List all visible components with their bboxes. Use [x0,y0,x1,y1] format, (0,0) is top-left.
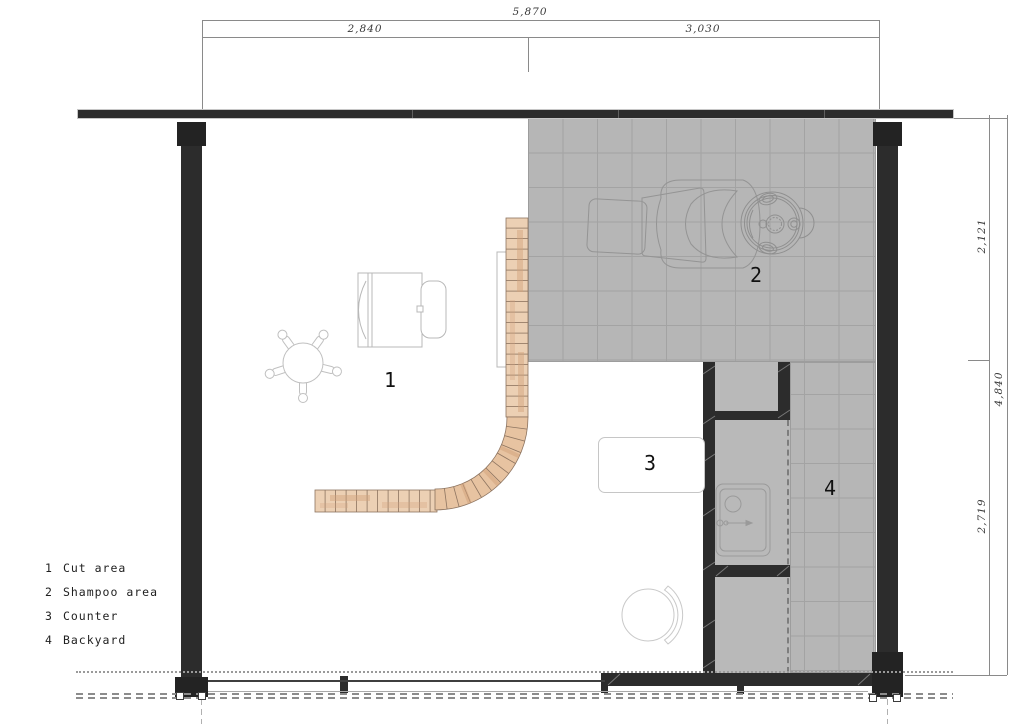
dim-top-left-segment: 2,840 [330,23,400,35]
backyard-partition-dashed-line [787,420,789,673]
storefront-glass-line [208,680,605,682]
dim-right-total: 4,840 [993,354,1005,424]
wood-screen-curve [435,417,528,510]
dim-right-bottom-segment: 2,719 [976,481,988,551]
legend-number: 1 [45,556,53,580]
corridor-mid-wall [715,565,790,577]
dimension-line-top-total [202,20,880,21]
site-boundary-dotted-line [76,671,953,673]
dim-right-top-segment: 2,121 [976,201,988,271]
column-centerline [887,699,888,724]
site-boundary-dashed-line [76,693,953,695]
closet-right-wall [778,362,790,420]
area-label-cut-area: 1 [375,368,405,392]
floor-plan-canvas: 5,870 2,840 3,030 2,121 4,840 2,719 [0,0,1024,724]
left-column [181,122,202,695]
wood-screen-horizontal-band [315,490,437,512]
beam-seam [618,110,619,118]
column-foot-plate [198,692,206,700]
counter-stool-seat [622,589,674,641]
legend-label: Shampoo area [63,580,158,604]
beam-seam [824,110,825,118]
extension-line-right [879,20,880,110]
area-label-shampoo-area: 2 [741,263,771,287]
dimension-line-right-segments [989,115,990,675]
storefront-sill-line [208,691,868,692]
wood-screen-curve-slat-lines [444,426,527,509]
right-column-top-cap [873,122,902,146]
extension-line-left [202,20,203,110]
extension-line-mid [528,37,529,72]
wood-screen-vertical-band [506,218,528,417]
column-foot-plate [869,694,877,702]
legend-item-backyard: 4 Backyard [45,628,158,652]
backyard-floor [790,362,876,673]
styling-chair-body [358,273,422,347]
dimension-tick-mid [968,360,990,361]
wood-grain-curve-streaks [462,447,519,503]
legend-label: Cut area [63,556,126,580]
right-column [877,122,898,697]
styling-chair-armrest [421,281,446,338]
left-column-top-cap [177,122,206,146]
dimension-connector-top [950,118,1007,119]
wood-grain-streaks [320,230,524,508]
rolling-stool [264,328,342,402]
column-centerline [201,699,202,724]
mirror-console [497,252,507,367]
legend-number: 2 [45,580,53,604]
legend: 1 Cut area 2 Shampoo area 3 Counter 4 Ba… [45,556,158,652]
dim-top-right-segment: 3,030 [668,23,738,35]
column-foot-plate [893,694,901,702]
storefront-mullion [601,673,608,693]
legend-number: 4 [45,628,53,652]
legend-label: Backyard [63,628,126,652]
beam-seam [412,110,413,118]
styling-chair-handle [417,306,423,312]
legend-item-cut-area: 1 Cut area [45,556,158,580]
styling-chair-backrest-curve [359,281,367,339]
legend-item-shampoo-area: 2 Shampoo area [45,580,158,604]
closet-bottom-wall [703,411,790,420]
dimension-line-top-segments [202,37,880,38]
area-label-backyard: 4 [815,476,845,500]
legend-item-counter: 3 Counter [45,604,158,628]
site-boundary-dashed-line [76,697,953,699]
dimension-connector-bottom [905,675,1007,676]
rolling-stool-seat [283,343,323,383]
dimension-line-right-total [1007,115,1008,675]
dim-top-total: 5,870 [495,6,565,18]
interior-wall-vertical [703,362,715,675]
top-wall-beam [78,110,953,118]
right-column-base [872,652,903,697]
styling-chair [358,273,446,347]
shampoo-area-floor [528,118,876,362]
counter-stool [622,586,683,644]
area-label-counter: 3 [635,451,665,475]
counter-stool-backrest [665,586,683,644]
legend-number: 3 [45,604,53,628]
column-foot-plate [176,692,184,700]
legend-label: Counter [63,604,118,628]
wood-slat-screen [315,218,528,512]
